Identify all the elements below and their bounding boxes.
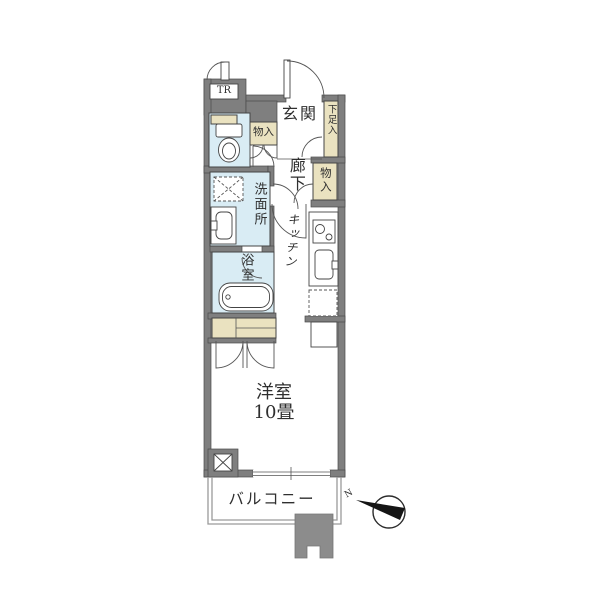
kitchen-door-arc — [272, 204, 306, 238]
shoe-storage-box — [324, 101, 338, 157]
entrance-door-leaf — [284, 60, 290, 98]
wall-above-hall-storage — [311, 157, 345, 163]
wall-closet-bottom — [208, 338, 276, 343]
shoe-storage-door-arc — [302, 137, 322, 157]
toilet-bowl — [219, 138, 240, 162]
wall-right — [338, 95, 345, 477]
toilet-shelf — [211, 115, 237, 124]
balcony-window-opening — [253, 470, 330, 477]
trunk-room-box — [210, 84, 238, 99]
washroom-door-arc — [273, 184, 298, 209]
hallway-storage-box — [313, 163, 337, 200]
balcony-rail-inner — [212, 477, 337, 520]
wall-fridge-bottom — [305, 316, 345, 322]
floor-plan: TR 玄関 廊下 下足入 物入 物入 洗面所 浴室 キッチン 洋室 10畳 バル… — [0, 0, 604, 615]
wall-bath-divider-right — [262, 246, 274, 252]
building-mass — [295, 514, 333, 558]
balcony-window — [253, 467, 330, 480]
wall-bottom-right — [330, 470, 345, 477]
entrance-door-arc — [287, 61, 324, 98]
compass — [356, 496, 405, 528]
floor-plan-drawing — [0, 0, 604, 615]
wall-entry-strip — [246, 101, 277, 122]
entrance-storage-box — [250, 122, 277, 145]
closet-folding-door-right — [247, 341, 274, 368]
wall-kitchen-top — [311, 200, 345, 207]
side-cabinet — [311, 322, 337, 347]
trunk-room-door-leaf — [221, 62, 229, 80]
entrance-storage-door-left — [250, 145, 263, 158]
toilet-tank — [216, 124, 242, 137]
vanity-faucet — [211, 221, 217, 230]
closet-folding-door-left — [216, 341, 243, 368]
wall-bath-divider-left — [210, 246, 242, 252]
compass-needle — [356, 500, 405, 520]
refrigerator-space — [309, 290, 337, 316]
kitchen-faucet — [332, 261, 338, 269]
